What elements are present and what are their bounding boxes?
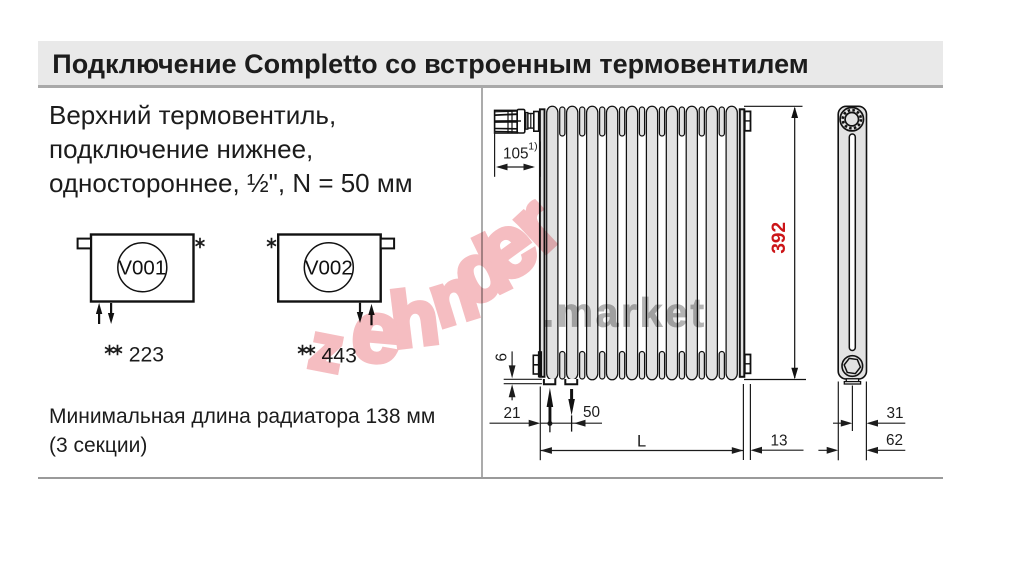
svg-text:z: z (304, 310, 349, 387)
svg-text:.market: .market (543, 289, 707, 335)
